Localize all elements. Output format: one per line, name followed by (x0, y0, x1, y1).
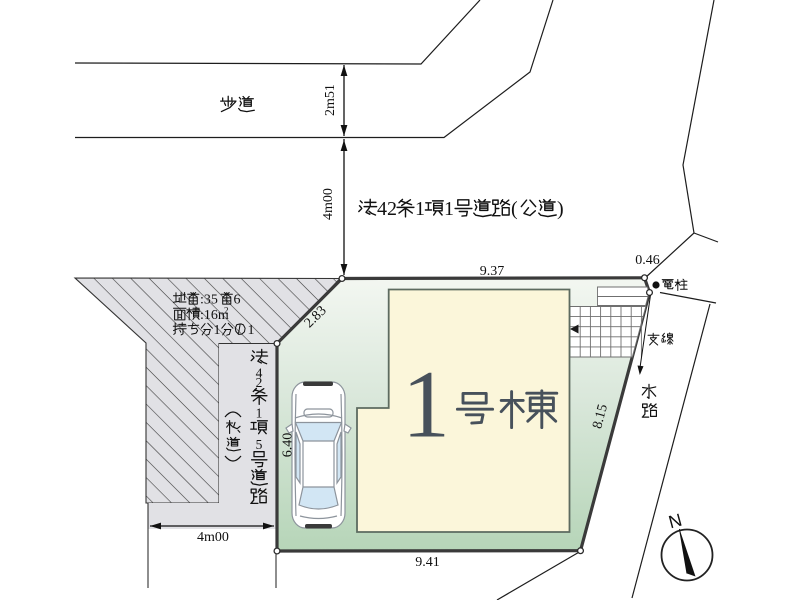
svg-text:6.40: 6.40 (281, 433, 296, 458)
svg-text:2m51: 2m51 (323, 84, 338, 116)
svg-text:9.37: 9.37 (480, 264, 505, 279)
svg-text:2: 2 (224, 306, 229, 316)
svg-text:1: 1 (256, 406, 263, 421)
svg-text:1: 1 (248, 323, 255, 338)
svg-text:6: 6 (234, 293, 241, 308)
svg-text:42: 42 (377, 198, 397, 220)
svg-text:4m00: 4m00 (197, 530, 229, 545)
svg-text:(: ( (511, 198, 518, 220)
svg-text:0.46: 0.46 (635, 253, 660, 268)
svg-text:1: 1 (444, 198, 454, 220)
svg-text:1: 1 (415, 198, 425, 220)
svg-text:): ) (557, 198, 564, 220)
svg-text:9.41: 9.41 (415, 555, 440, 570)
svg-text:4m00: 4m00 (321, 188, 336, 220)
svg-text:1: 1 (214, 323, 221, 338)
svg-text:1: 1 (402, 351, 450, 458)
svg-text::35: :35 (200, 293, 218, 308)
svg-text:2: 2 (256, 375, 263, 390)
svg-text:5: 5 (256, 437, 263, 452)
